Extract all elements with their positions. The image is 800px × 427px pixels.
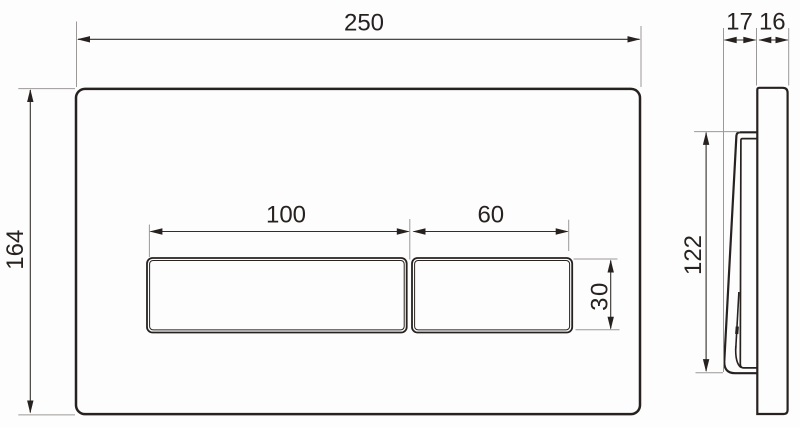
svg-text:250: 250 <box>344 10 384 37</box>
svg-text:60: 60 <box>477 202 504 229</box>
svg-text:30: 30 <box>587 281 614 311</box>
svg-text:17: 17 <box>726 9 753 36</box>
svg-text:122: 122 <box>680 235 707 275</box>
svg-text:100: 100 <box>266 202 306 229</box>
svg-text:164: 164 <box>2 230 29 270</box>
svg-text:16: 16 <box>759 9 786 36</box>
